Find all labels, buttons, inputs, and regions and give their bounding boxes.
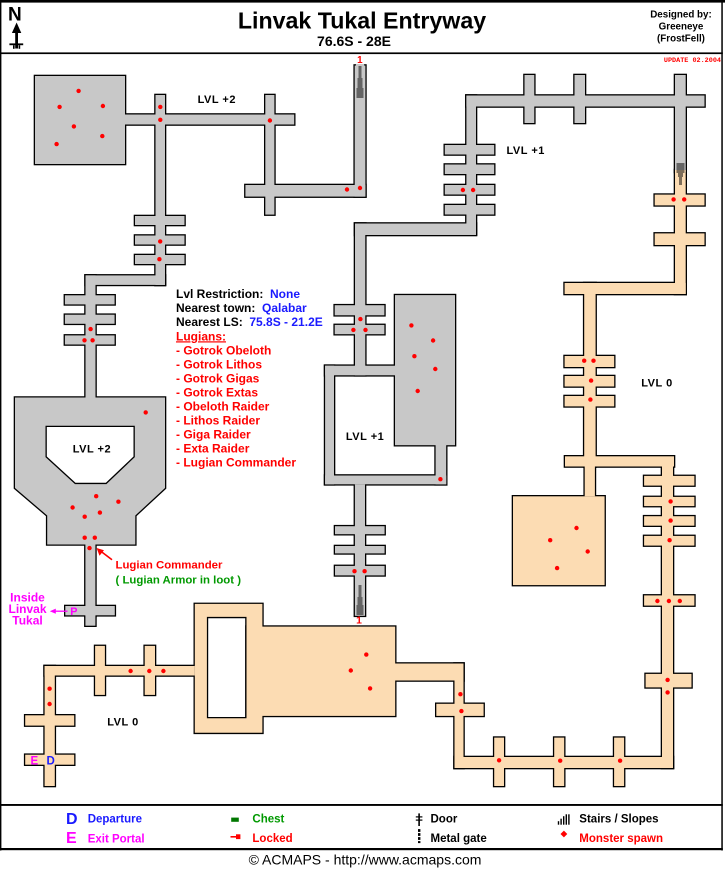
- svg-text:UPDATE 02.2004: UPDATE 02.2004: [664, 57, 721, 65]
- svg-text:LVL +2: LVL +2: [73, 443, 111, 455]
- svg-text:- Gotrok Obeloth: - Gotrok Obeloth: [176, 343, 271, 357]
- svg-text:E: E: [31, 755, 39, 767]
- svg-text:Lugian Commander: Lugian Commander: [116, 559, 224, 571]
- svg-text:Nearest town: Qalabar: Nearest town: Qalabar: [176, 301, 307, 315]
- svg-text:Lugians:: Lugians:: [176, 329, 226, 343]
- svg-text:© ACMAPS - http://www.acmaps.c: © ACMAPS - http://www.acmaps.com: [249, 852, 482, 868]
- svg-text:D: D: [66, 811, 78, 828]
- svg-text:N: N: [8, 5, 22, 26]
- svg-text:LVL 0: LVL 0: [641, 377, 672, 389]
- svg-text:- Giga Raider: - Giga Raider: [176, 428, 251, 442]
- svg-text:Greeneye: Greeneye: [659, 21, 704, 32]
- svg-text:- Gotrok Extas: - Gotrok Extas: [176, 386, 258, 400]
- svg-text:- Lugian Commander: - Lugian Commander: [176, 456, 296, 470]
- svg-text:Tukal: Tukal: [12, 614, 42, 628]
- svg-text:Exit Portal: Exit Portal: [88, 833, 145, 845]
- svg-text:Metal gate: Metal gate: [431, 833, 487, 845]
- svg-text:D: D: [47, 755, 55, 767]
- svg-text:Chest: Chest: [252, 813, 284, 825]
- svg-text:1: 1: [357, 55, 363, 66]
- svg-text:( Lugian Armor in loot ): ( Lugian Armor in loot ): [116, 574, 242, 586]
- svg-text:LVL 0: LVL 0: [107, 717, 138, 729]
- svg-text:- Gotrok Lithos: - Gotrok Lithos: [176, 357, 262, 371]
- svg-text:Locked: Locked: [252, 833, 292, 845]
- svg-text:(FrostFell): (FrostFell): [657, 34, 705, 45]
- svg-text:Lvl Restriction: None: Lvl Restriction: None: [176, 287, 300, 301]
- svg-text:LVL +1: LVL +1: [507, 145, 545, 157]
- svg-text:LVL +2: LVL +2: [198, 94, 236, 106]
- svg-text:Designed by:: Designed by:: [650, 9, 712, 20]
- svg-text:Door: Door: [431, 813, 458, 825]
- svg-text:E: E: [66, 830, 77, 847]
- svg-text:- Gotrok Gigas: - Gotrok Gigas: [176, 371, 260, 385]
- svg-text:1: 1: [356, 616, 362, 627]
- svg-text:- Exta Raider: - Exta Raider: [176, 442, 250, 456]
- svg-text:P: P: [70, 606, 77, 618]
- svg-text:- Lithos Raider: - Lithos Raider: [176, 414, 260, 428]
- svg-text:Monster spawn: Monster spawn: [579, 833, 663, 845]
- svg-text:Stairs / Slopes: Stairs / Slopes: [579, 813, 658, 825]
- svg-text:Nearest LS: 75.8S - 21.2E: Nearest LS: 75.8S - 21.2E: [176, 315, 323, 329]
- svg-text:Departure: Departure: [88, 813, 142, 825]
- svg-text:Linvak Tukal Entryway: Linvak Tukal Entryway: [238, 8, 486, 34]
- svg-text:- Obeloth Raider: - Obeloth Raider: [176, 400, 270, 414]
- svg-text:LVL +1: LVL +1: [346, 431, 384, 443]
- svg-text:76.6S - 28E: 76.6S - 28E: [317, 33, 391, 49]
